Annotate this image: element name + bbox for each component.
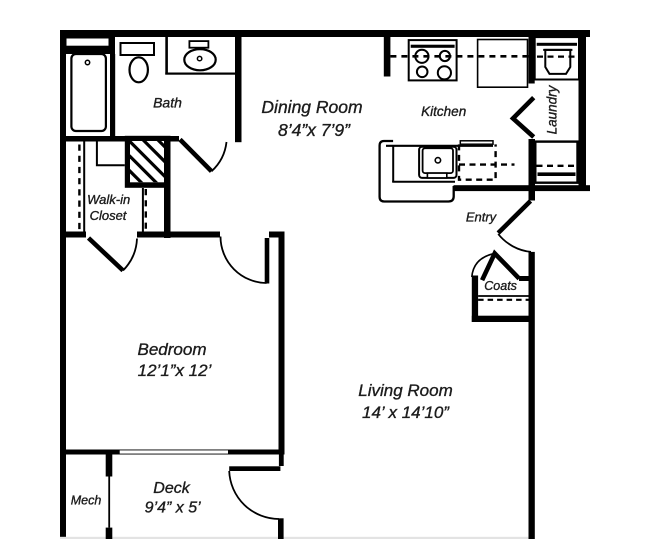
svg-text:9’4” x 5’: 9’4” x 5’ xyxy=(145,500,201,517)
svg-text:14’ x 14’10”: 14’ x 14’10” xyxy=(362,403,450,422)
svg-text:Bath: Bath xyxy=(153,95,182,111)
svg-text:Kitchen: Kitchen xyxy=(421,104,466,119)
svg-text:Bedroom: Bedroom xyxy=(138,340,207,359)
svg-text:Living Room: Living Room xyxy=(358,381,453,400)
svg-text:Coats: Coats xyxy=(484,279,517,293)
svg-text:Laundry: Laundry xyxy=(545,84,560,134)
svg-text:Deck: Deck xyxy=(153,480,190,497)
svg-text:Entry: Entry xyxy=(466,210,498,225)
svg-text:12’1”x 12’: 12’1”x 12’ xyxy=(138,361,212,380)
svg-text:Mech: Mech xyxy=(71,494,102,508)
svg-text:Walk-in: Walk-in xyxy=(87,192,130,207)
svg-text:Dining Room: Dining Room xyxy=(261,97,362,117)
svg-text:Closet: Closet xyxy=(90,208,128,223)
svg-text:8’4”x 7’9”: 8’4”x 7’9” xyxy=(278,120,351,140)
